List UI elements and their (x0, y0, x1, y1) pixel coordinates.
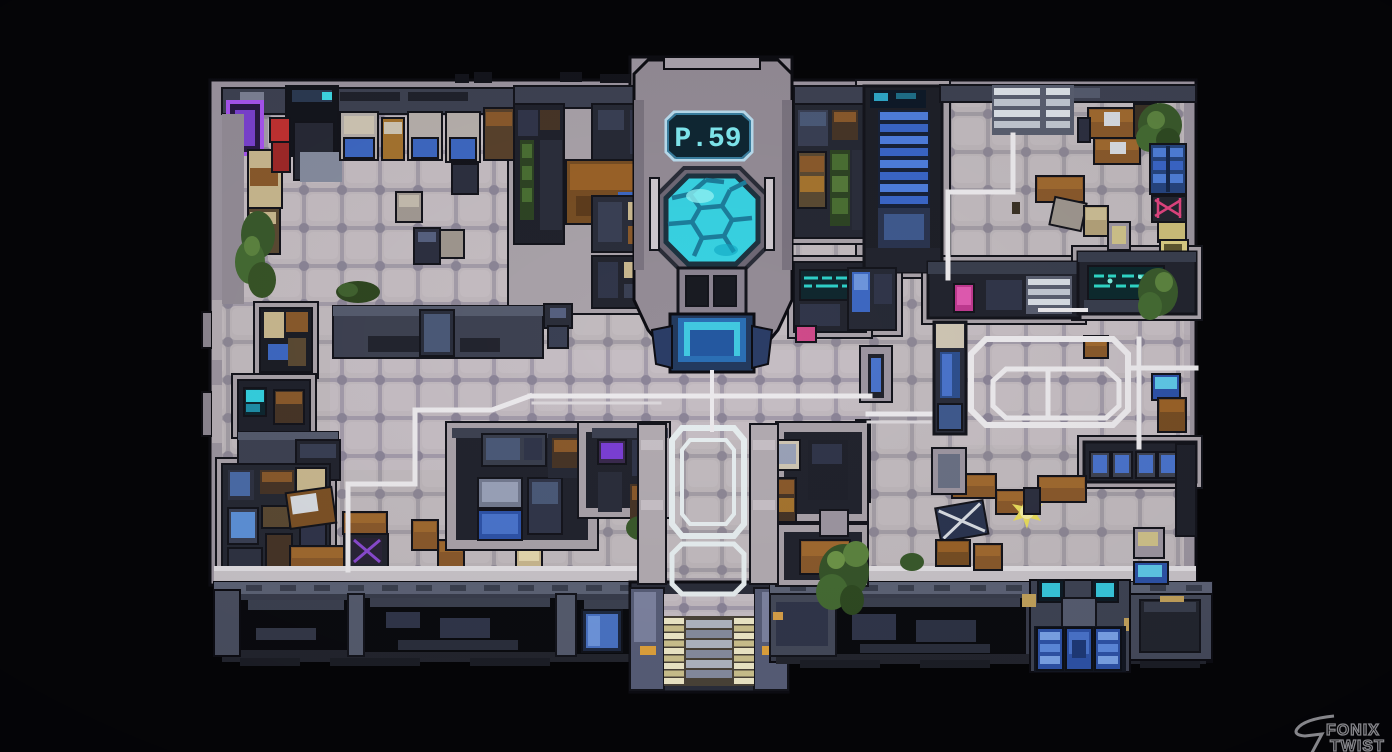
svg-text:FONIX: FONIX (1326, 722, 1380, 739)
svg-text:TWIST: TWIST (1330, 738, 1385, 752)
